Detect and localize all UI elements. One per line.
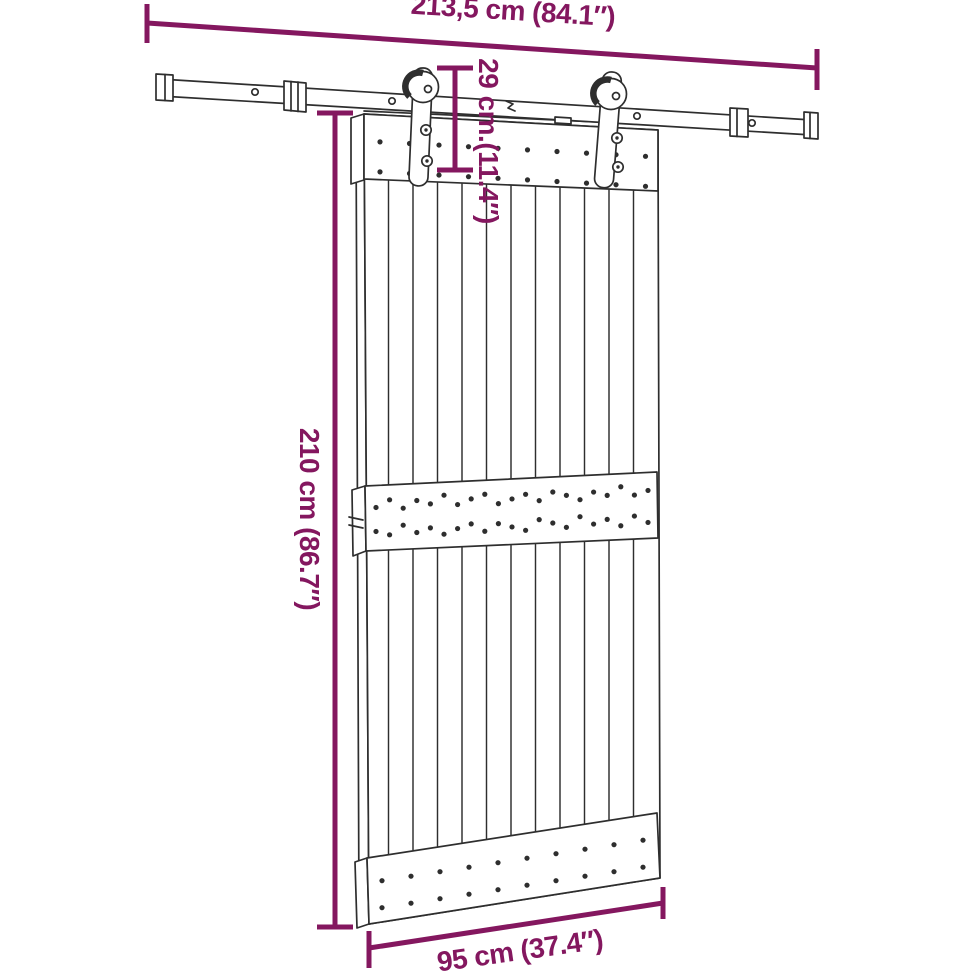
- rail-joint-plate: [555, 117, 571, 124]
- door-height-label: 210 cm (86.7″): [293, 428, 325, 610]
- middle-board-side: [352, 486, 366, 556]
- roller-axle-left: [425, 86, 432, 93]
- top-board-side: [351, 114, 364, 184]
- rail-coupler-left: [284, 81, 306, 112]
- middle-board: [365, 472, 658, 551]
- rail-end-cap-right: [804, 112, 818, 139]
- top-offset-label: 29 cm.(11.4″): [472, 58, 504, 224]
- roller-axle-right: [613, 93, 620, 100]
- rail-coupler-right: [730, 108, 748, 137]
- barn-door-dimension-diagram: 213,5 cm (84.1″) 29 cm.(11.4″) 210 cm (8…: [0, 0, 970, 971]
- door-panel: [349, 114, 660, 928]
